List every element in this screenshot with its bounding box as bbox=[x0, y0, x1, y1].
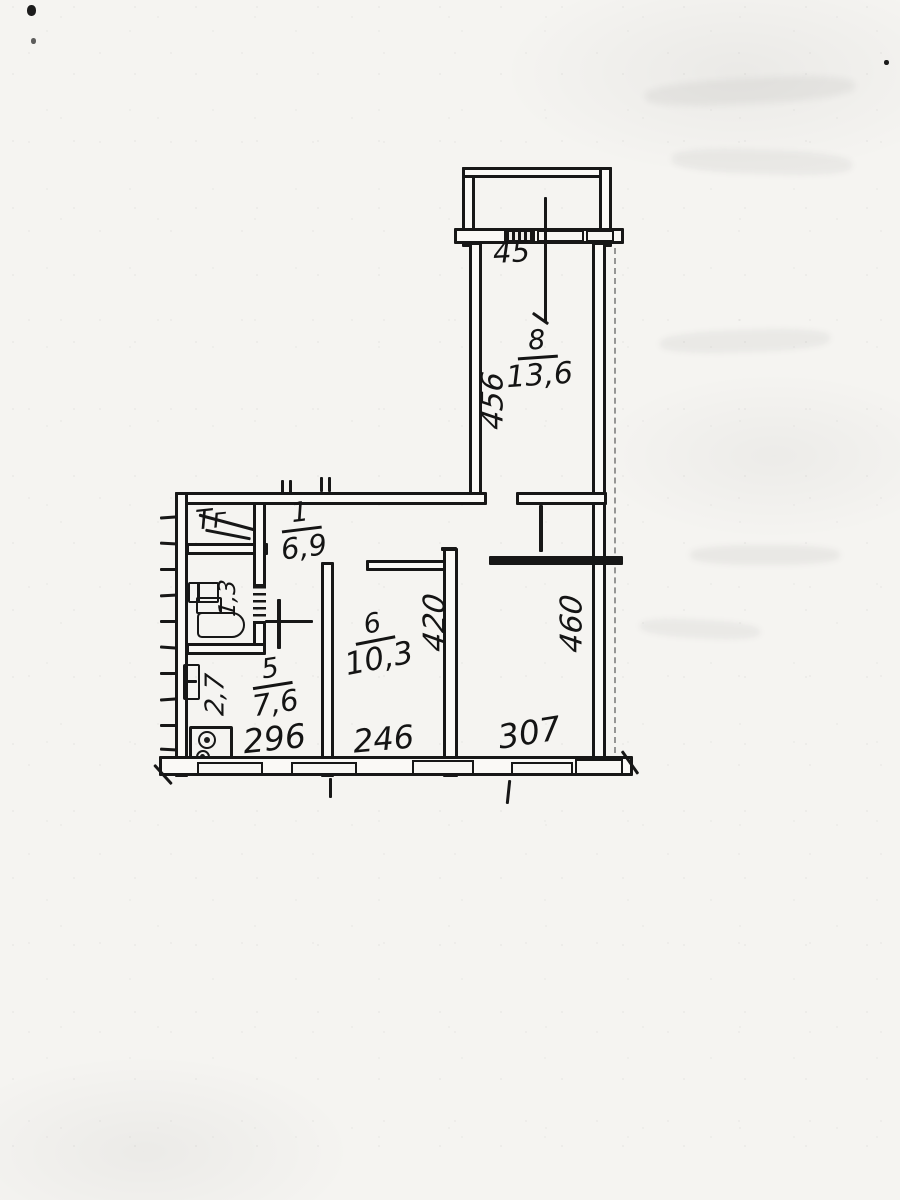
living-room-height-dimension: 460 bbox=[556, 582, 588, 666]
balcony-top-wall bbox=[462, 167, 612, 178]
scan-smudge bbox=[672, 147, 853, 177]
dimension-leader-line bbox=[544, 197, 547, 322]
scan-smudge bbox=[690, 545, 840, 565]
window-sill bbox=[575, 759, 623, 775]
room6-area: 10,3 bbox=[339, 636, 420, 682]
room8-number: 8 bbox=[516, 326, 557, 361]
living-room-top-wall bbox=[489, 556, 623, 565]
wall-hatch-tick bbox=[160, 672, 176, 675]
scan-ink-spot bbox=[31, 38, 36, 44]
room6-height-dimension: 420 bbox=[419, 579, 451, 666]
closet-right-wall bbox=[253, 502, 266, 587]
right-outer-wall bbox=[592, 242, 606, 775]
room8-height-dimension: 456 bbox=[477, 358, 509, 444]
kitchen-width-dimension: 296 bbox=[241, 719, 307, 760]
room8-bottom-wall bbox=[516, 492, 607, 505]
entrance-door-tick bbox=[289, 480, 292, 493]
wc-door-swing-line bbox=[265, 620, 313, 623]
room8-area: 13,6 bbox=[505, 358, 573, 394]
window-sill bbox=[197, 762, 263, 775]
balcony-window-sill bbox=[586, 230, 614, 242]
entrance-door-tick bbox=[281, 480, 284, 493]
wc-door-leaf bbox=[277, 599, 281, 649]
balcony-dimension: 45 bbox=[492, 236, 530, 268]
entrance-door-tick bbox=[328, 477, 331, 492]
window-sill bbox=[412, 760, 474, 775]
closet-label: Тг bbox=[195, 504, 228, 535]
stove-burner-center bbox=[204, 737, 210, 743]
kitchen-side-dimension: 2,7 bbox=[202, 658, 229, 731]
wall-hatch-tick bbox=[160, 542, 176, 546]
wall-hatch-tick bbox=[160, 724, 176, 727]
scan-smudge bbox=[660, 327, 831, 355]
wall-end-hook bbox=[441, 547, 457, 551]
wc-bottom-wall bbox=[186, 643, 266, 655]
scan-smudge bbox=[644, 73, 855, 110]
outer-wall-dashed-line bbox=[614, 248, 616, 763]
dimension-tick bbox=[506, 780, 511, 804]
scan-ink-spot bbox=[884, 60, 889, 65]
corridor-room-label: 1 6,9 bbox=[268, 496, 335, 567]
corridor-room-area: 6,9 bbox=[272, 529, 335, 567]
wc-area: 1,3 bbox=[216, 561, 240, 636]
wall-hatch-tick bbox=[160, 748, 176, 752]
left-outer-wall bbox=[175, 492, 188, 777]
scan-smudge bbox=[640, 617, 761, 641]
wall-hatch-tick bbox=[160, 594, 176, 598]
scan-ink-spot bbox=[27, 5, 36, 16]
living-room-width-dimension: 307 bbox=[496, 711, 564, 755]
wall-hatch-tick bbox=[160, 620, 176, 623]
wall-hatch-tick bbox=[160, 515, 176, 519]
wc-door-opening-hatch bbox=[253, 586, 266, 622]
wall-hatch-tick bbox=[160, 568, 176, 571]
wall-hatch-tick bbox=[160, 645, 176, 649]
room6-width-dimension: 246 bbox=[352, 720, 416, 759]
scanned-floor-plan-page: { "document": { "type": "hand-drawn apar… bbox=[0, 0, 900, 1200]
floor-plan: Тг 1 6,9 .frac .top{font-size:27px;} 8 1… bbox=[0, 0, 900, 1200]
dimension-tick bbox=[329, 778, 332, 798]
room6-left-wall bbox=[321, 562, 334, 777]
entrance-door-tick bbox=[320, 477, 323, 492]
room8-door-leaf bbox=[539, 505, 543, 552]
kitchen-sink-divider bbox=[186, 680, 197, 683]
window-sill bbox=[291, 762, 357, 775]
wall-hatch-tick bbox=[160, 697, 176, 701]
window-sill bbox=[511, 762, 573, 775]
kitchen-label: 5 7,6 bbox=[239, 651, 306, 723]
room8-label: 8 13,6 bbox=[503, 325, 573, 394]
room6-label: 6 10,3 bbox=[332, 603, 419, 682]
